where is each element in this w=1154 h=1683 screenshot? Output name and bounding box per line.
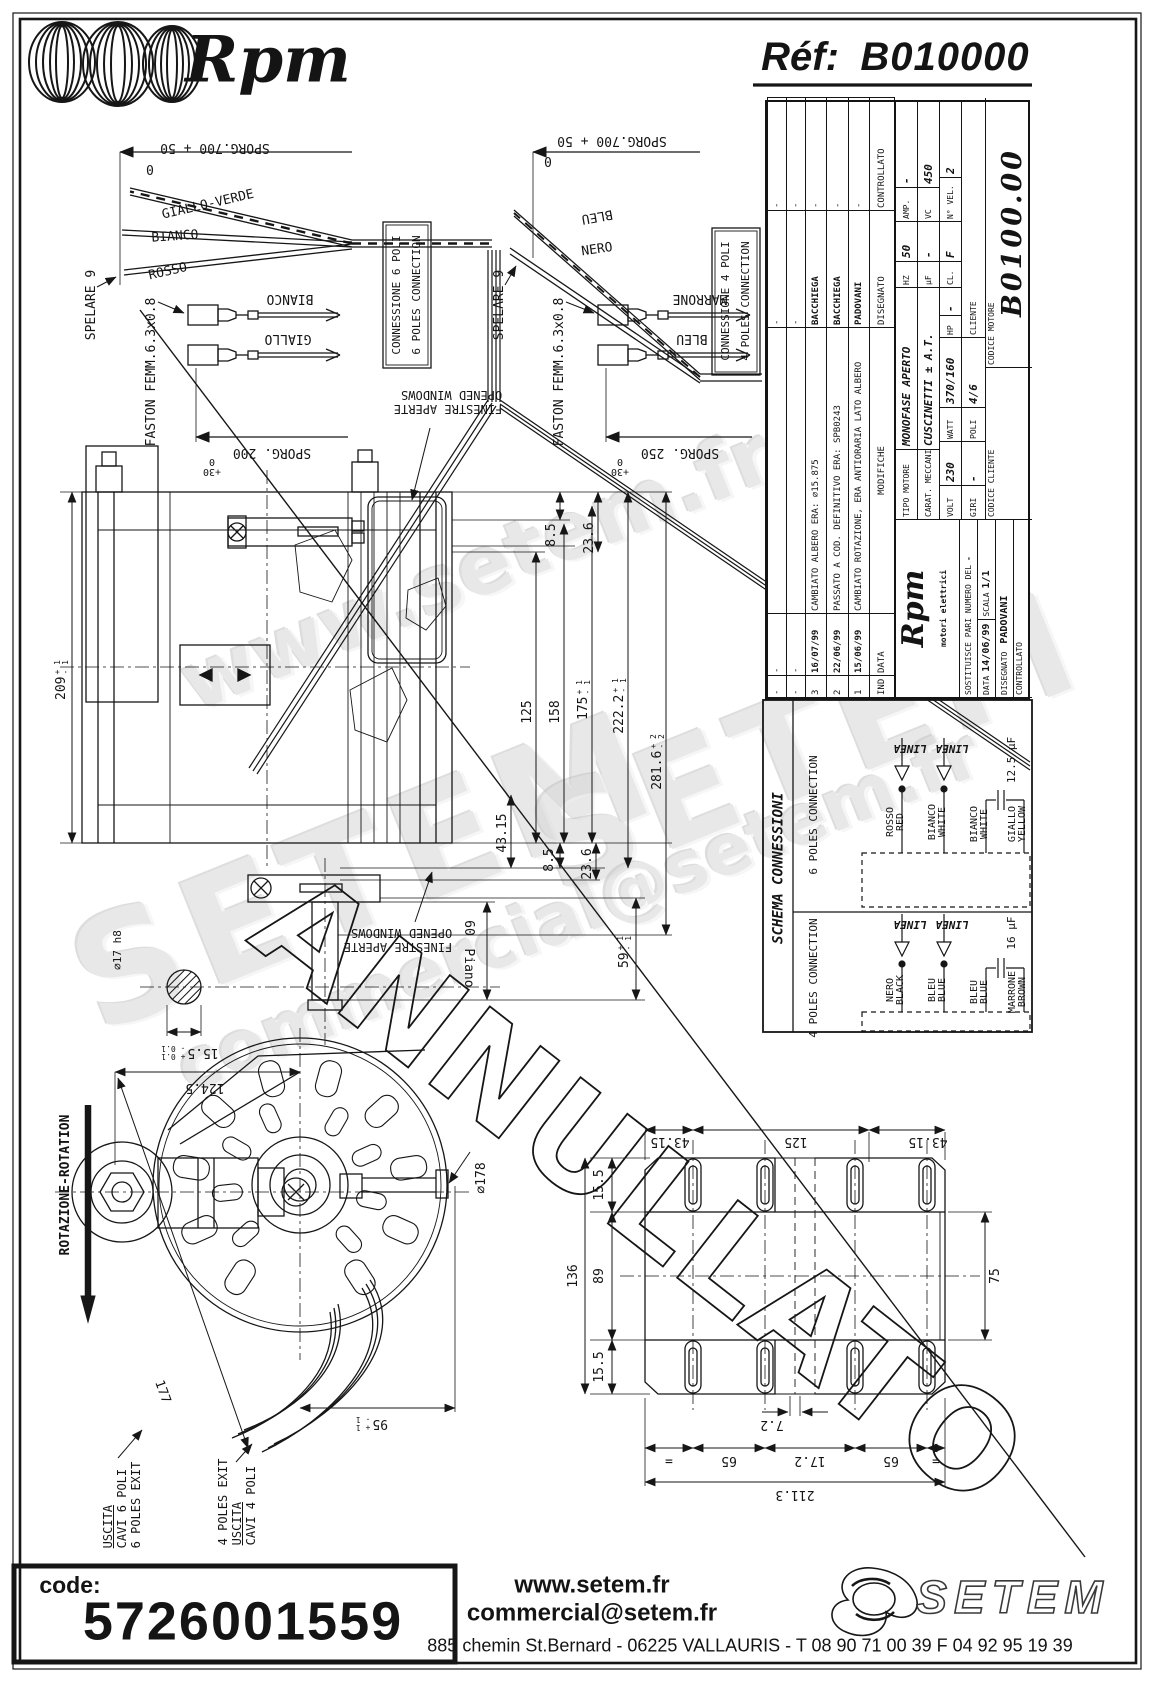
rpm-logo-text: Rpm	[185, 26, 351, 93]
dim-sporg700-4p-zero: 0	[544, 153, 552, 167]
schema-6p-linea1: LINEA	[893, 742, 926, 754]
dim-222-2: 222.2+ 1- 1	[612, 678, 628, 734]
note-rotation: ROTAZIONE-ROTATION	[59, 1115, 73, 1256]
dim-8-5-top: 8.5	[545, 523, 559, 546]
revision-table: ---- ---- 316/07/99CAMBIATO ALBERO ERA: …	[767, 97, 895, 698]
dim-sporg250-tol: +300	[611, 456, 629, 476]
schema-6p-cap: 12.5 µF	[1006, 737, 1018, 783]
titleblock-data-scala: DATA 14/06/99 SCALA 1/1	[977, 520, 995, 698]
schema-6p-wire4: GIALLOYELLOW	[1008, 806, 1028, 842]
conn6-box-line1: CONNESSIONE 6 POLI	[391, 235, 403, 354]
dim-sporg200-tol: +300	[203, 456, 221, 476]
dim-base-65-l: 65	[721, 1453, 737, 1467]
faston-wire-bianco: BIANCO	[267, 291, 314, 305]
dim-8-5-bottom: 8.5	[543, 848, 557, 871]
footer-web: www.setem.fr	[514, 1572, 669, 1597]
dim-sporg700-6p: SPORG.700 + 50	[160, 140, 270, 154]
schema-6p-linea2: LINEA	[935, 742, 968, 754]
dim-dia178: ∅178	[475, 1162, 489, 1193]
dim-sporg700-4p: SPORG.700 + 50	[557, 133, 667, 147]
dim-base-125: 125	[784, 1134, 807, 1148]
dim-base-89: 89	[593, 1268, 607, 1284]
dim-23-6-top: 23.6	[583, 522, 597, 553]
spec-row-volt: VOLT 230 WATT 370/160 HP - CL. F N° VEL.…	[939, 100, 961, 520]
footer-email: commercial@setem.fr	[467, 1600, 717, 1625]
dim-281-6: 281.6+ 2- 2	[650, 734, 666, 790]
dim-59: 59+ 1- 1	[617, 936, 633, 968]
conn4-box-line1: CONNESSIONE 4 POLI	[720, 241, 732, 360]
conn6-box-line2: 6 POLES CONNECTION	[411, 235, 423, 354]
schema-title: SCHEMA CONNESSIONI	[772, 792, 787, 944]
dim-sporg250: SPORG. 250	[641, 445, 719, 459]
schema-6p-wire3: BIANCOWHITE	[970, 806, 990, 842]
dim-base-15-5-top: 15.5	[593, 1169, 607, 1200]
front-dimensions	[81, 1072, 470, 1462]
spec-row-tipo: TIPO MOTORE MONOFASE APERTO HZ 50 AMP. -	[895, 100, 917, 520]
schema-6p-wire2: BIANCOWHITE	[928, 804, 948, 840]
schema-4p-label: 4 POLES CONNECTION	[808, 918, 820, 1037]
conn4-box-line2: 4 POLES CONNECTION	[740, 241, 752, 360]
dim-158: 158	[549, 700, 563, 723]
dim-base-15-5-bottom: 15.5	[593, 1351, 607, 1382]
dim-base-7-2: 7.2	[760, 1417, 783, 1431]
note-exit-4p: 4 POLES EXIT USCITA CAVI 4 POLI	[216, 1459, 258, 1546]
dim-95: 95+ 1- 1	[356, 1415, 388, 1431]
code-value: 5726001559	[83, 1594, 403, 1651]
dim-base-17-2: 17.2	[794, 1453, 825, 1467]
wire-bianco: BIANCO	[151, 229, 199, 246]
dim-base-75: 75	[989, 1268, 1003, 1284]
titleblock-sostituisce: SOSTITUISCE PARI NUMERO DEL-	[959, 520, 977, 698]
spec-row-giri: GIRI - POLI 4/6 CLIENTE	[961, 100, 985, 520]
dim-43-15: 43.15	[496, 813, 510, 852]
dim-base-43-15-l: 43.15	[650, 1134, 689, 1148]
dim-sporg200: SPORG. 200	[233, 445, 311, 459]
setem-logo-swirl	[832, 1568, 917, 1636]
dim-base-eq-r: =	[932, 1453, 940, 1467]
title-block: ---- ---- 316/07/99CAMBIATO ALBERO ERA: …	[765, 100, 1030, 700]
footer-address: 885 chemin St.Bernard - 06225 VALLAURIS …	[427, 1637, 1072, 1656]
dim-209: 209+ 1- 1	[54, 660, 70, 700]
titleblock-codice-motore: CODICE MOTORE B0100.00	[985, 98, 1032, 368]
dim-23-6-bottom: 23.6	[581, 848, 595, 879]
dim-sporg700-6p-zero: 0	[146, 161, 154, 175]
schema-6p-label: 6 POLES CONNECTION	[808, 755, 820, 874]
schema-4p-wire1: NEROBLACK	[886, 975, 906, 1005]
ref-value: B010000	[860, 36, 1029, 78]
schema-4p-wire4: MARRONEBROWN	[1008, 971, 1028, 1013]
titleblock-logo: Rpm motori elettrici	[895, 520, 959, 698]
note-spelare-6p: SPELARE 9	[85, 270, 99, 340]
dim-base-211-3: 211.3	[775, 1487, 814, 1501]
note-faston-6p: FASTON FEMM.6.3x0.8	[145, 298, 159, 447]
dim-125: 125	[521, 700, 535, 723]
dim-base-eq-l: =	[665, 1453, 673, 1467]
schema-4p-cap: 16 µF	[1006, 916, 1018, 949]
dim-base-136: 136	[567, 1264, 581, 1287]
titleblock-controllato: CONTROLLATO	[1013, 520, 1032, 698]
schema-4p-linea1: LINEA	[893, 918, 926, 930]
titleblock-codice-cliente: CODICE CLIENTE	[985, 368, 1032, 520]
dim-15-5-shaft: 15.5+ 0.1- 0.1	[161, 1044, 218, 1060]
schema-6p-wire1: ROSSORED	[886, 807, 906, 837]
dim-dia17: ∅17 h8	[112, 930, 124, 970]
faston-wire-giallo: GIALLO	[265, 331, 312, 345]
schema-4p-wire2: BLEUBLUE	[928, 978, 948, 1002]
dim-base-43-15-r: 43.15	[908, 1134, 947, 1148]
ref-label: Réf:	[761, 36, 839, 78]
note-spelare-4p: SPELARE 9	[493, 270, 507, 340]
drawing-sheet: www.setem.fr SETEM SETEM commercial@sete…	[0, 0, 1154, 1683]
dim-60-piano: Piano	[461, 948, 475, 987]
schema-4p-linea2: LINEA	[935, 918, 968, 930]
setem-brand-text: SETEM	[916, 1573, 1109, 1621]
rpm-logo-coils	[29, 22, 201, 106]
faston-wire-bleu: BLEU	[676, 331, 707, 345]
schema-4p-wire3: BLEUBLUE	[970, 980, 990, 1004]
note-faston-4p: FASTON FEMM.6.3x0.8	[553, 298, 567, 447]
note-finestre-bottom: FINESTRE APERTEOPENED WINDOWS	[344, 926, 452, 954]
dim-175: 175+ 1- 1	[576, 680, 592, 720]
spec-row-carat: CARAT. MECCANICHE CUSCINETTI ± A.T. µF -…	[917, 100, 939, 520]
titleblock-disegnato: DISEGNATO PADOVANI	[995, 520, 1013, 698]
dim-124-5: 124.5	[185, 1080, 224, 1094]
dim-base-65-r: 65	[883, 1453, 899, 1467]
note-finestre-top: FINESTRE APERTEOPENED WINDOWS	[394, 388, 502, 416]
dim-60: 60	[461, 920, 475, 936]
note-exit-6p: USCITA CAVI 6 POLI 6 POLES EXIT	[101, 1462, 143, 1549]
